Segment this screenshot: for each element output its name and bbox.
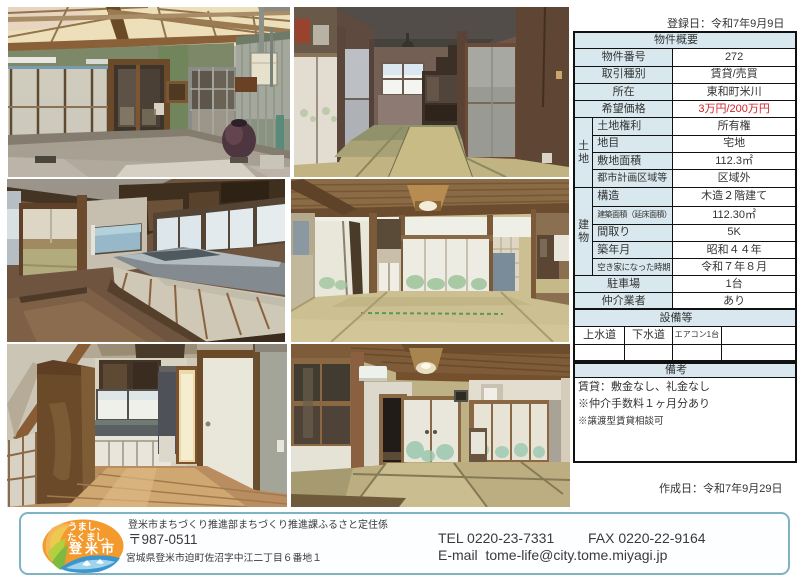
svg-text:うまし、: うまし、: [68, 521, 106, 533]
svg-text:登米市: 登米市: [68, 541, 117, 556]
